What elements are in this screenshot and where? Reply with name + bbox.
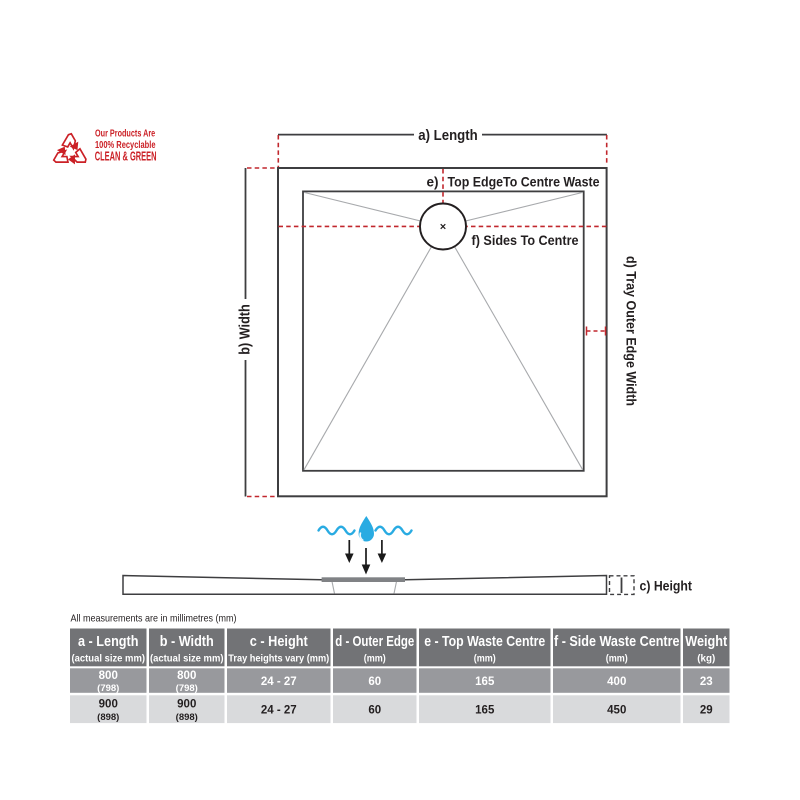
svg-text:(798): (798): [97, 683, 119, 694]
svg-text:450: 450: [607, 705, 626, 717]
svg-text:(actual size mm): (actual size mm): [150, 652, 224, 664]
svg-text:c - Height: c - Height: [250, 633, 308, 650]
svg-text:24 - 27: 24 - 27: [261, 676, 297, 688]
svg-text:(kg): (kg): [697, 652, 715, 664]
svg-text:e): e): [426, 174, 438, 189]
svg-text:b - Width: b - Width: [160, 633, 214, 650]
svg-text:(mm): (mm): [474, 652, 496, 664]
svg-text:(mm): (mm): [606, 652, 628, 664]
svg-text:(898): (898): [176, 712, 198, 723]
svg-text:(898): (898): [97, 712, 119, 723]
svg-text:800: 800: [99, 670, 118, 682]
svg-text:60: 60: [368, 705, 381, 717]
svg-text:b) Width: b) Width: [237, 304, 254, 355]
svg-text:(actual size mm): (actual size mm): [72, 652, 146, 664]
svg-text:165: 165: [475, 676, 495, 688]
svg-text:23: 23: [700, 676, 713, 688]
svg-text:(798): (798): [176, 683, 198, 694]
svg-text:165: 165: [475, 705, 495, 717]
svg-text:CLEAN & GREEN: CLEAN & GREEN: [95, 149, 157, 164]
svg-text:Tray heights vary (mm): Tray heights vary (mm): [228, 652, 329, 664]
svg-text:900: 900: [99, 699, 118, 711]
svg-text:a - Length: a - Length: [78, 633, 139, 650]
svg-text:800: 800: [177, 670, 196, 682]
svg-text:900: 900: [177, 699, 196, 711]
svg-text:Weight: Weight: [685, 633, 727, 650]
svg-text:(mm): (mm): [364, 652, 386, 664]
svg-text:c) Height: c) Height: [640, 577, 693, 593]
svg-text:d) Tray Outer Edge Width: d) Tray Outer Edge Width: [624, 256, 639, 406]
svg-text:400: 400: [607, 676, 626, 688]
svg-text:All measurements are in millim: All measurements are in millimetres (mm): [71, 613, 237, 625]
svg-text:Top EdgeTo Centre Waste: Top EdgeTo Centre Waste: [448, 174, 600, 189]
svg-text:a) Length: a) Length: [418, 127, 478, 144]
svg-text:e - Top Waste Centre: e - Top Waste Centre: [424, 633, 545, 650]
svg-text:Our Products Are: Our Products Are: [95, 128, 155, 140]
svg-text:d - Outer Edge: d - Outer Edge: [335, 633, 414, 650]
svg-text:29: 29: [700, 705, 713, 717]
svg-text:24 - 27: 24 - 27: [261, 705, 297, 717]
svg-text:f - Side Waste Centre: f - Side Waste Centre: [554, 633, 680, 650]
svg-text:60: 60: [368, 676, 381, 688]
svg-text:f) Sides To Centre: f) Sides To Centre: [472, 233, 579, 248]
